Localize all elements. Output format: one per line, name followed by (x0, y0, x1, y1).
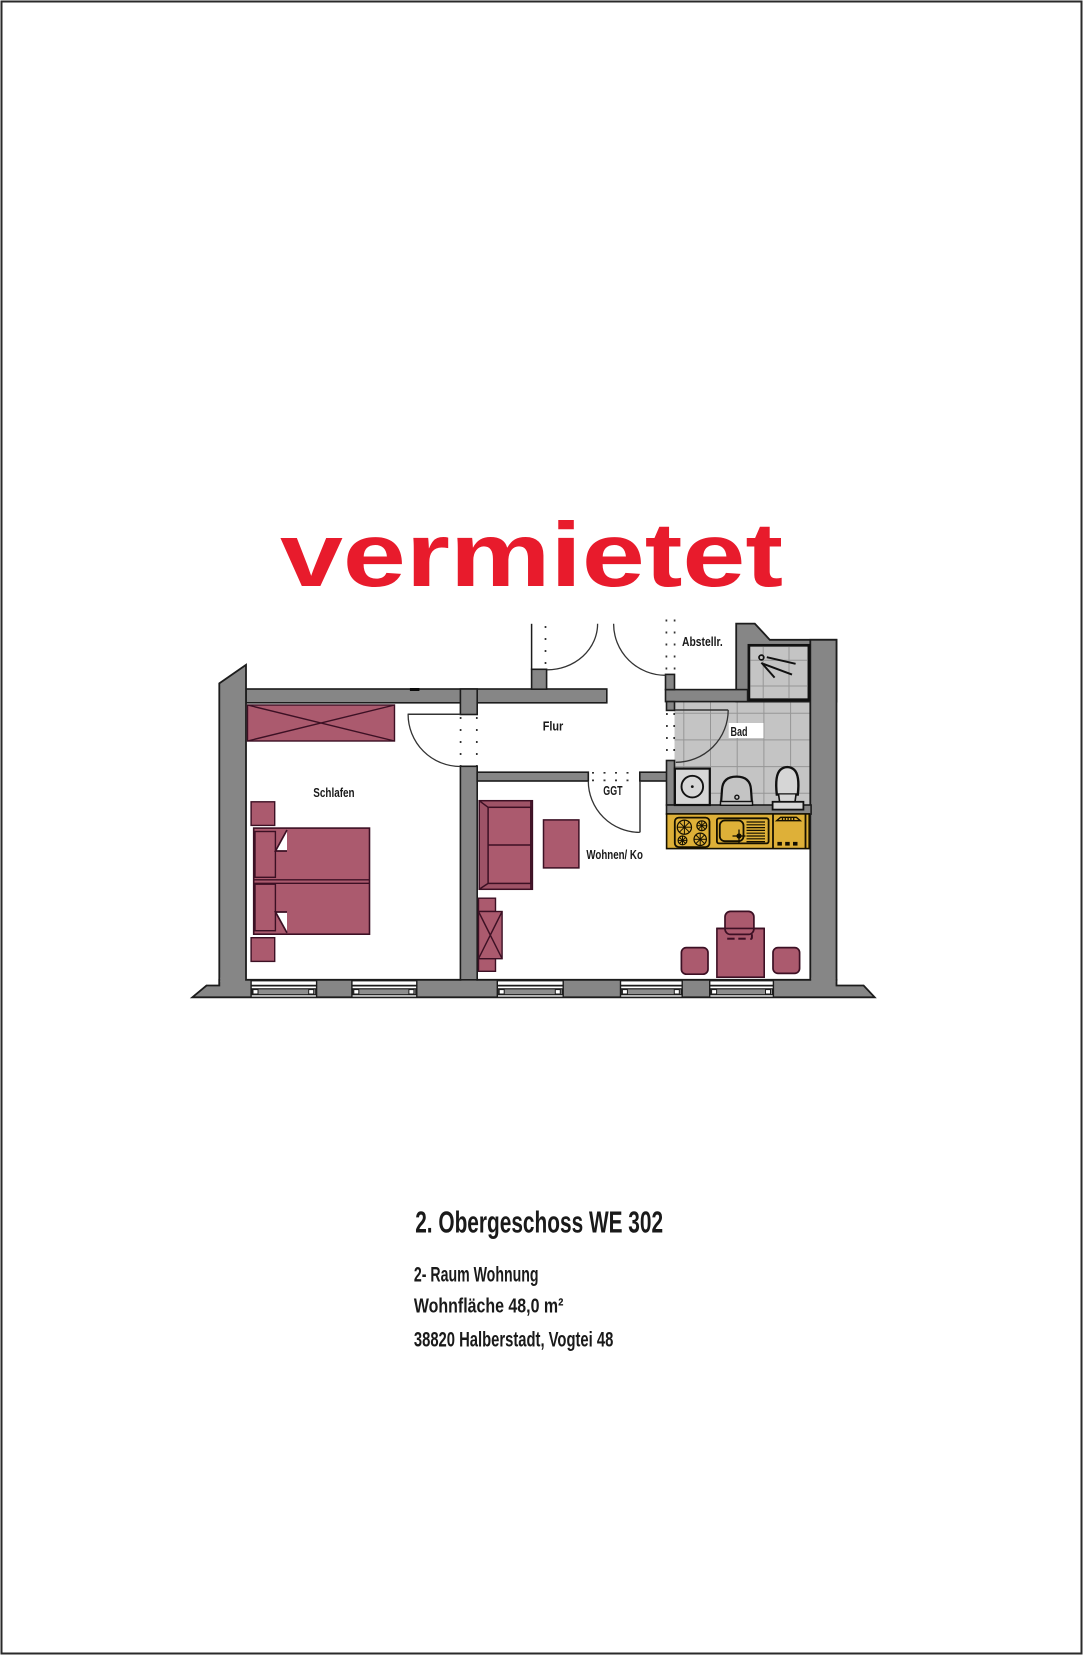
svg-text:Schlafen: Schlafen (313, 785, 354, 800)
svg-text:2- Raum Wohnung: 2- Raum Wohnung (414, 1263, 539, 1286)
svg-text:Wohnfläche 48,0 m²: Wohnfläche 48,0 m² (414, 1296, 564, 1318)
svg-text:GGT: GGT (603, 783, 622, 798)
svg-text:Abstellr.: Abstellr. (682, 634, 723, 649)
svg-text:Wohnen/ Ko: Wohnen/ Ko (586, 847, 643, 862)
svg-text:2. Obergeschoss WE 302: 2. Obergeschoss WE 302 (415, 1204, 663, 1239)
svg-text:Flur: Flur (543, 718, 564, 733)
svg-text:38820 Halberstadt, Vogtei 48: 38820 Halberstadt, Vogtei 48 (414, 1328, 614, 1351)
svg-text:vermietet: vermietet (280, 505, 783, 606)
svg-text:Bad: Bad (731, 724, 748, 739)
